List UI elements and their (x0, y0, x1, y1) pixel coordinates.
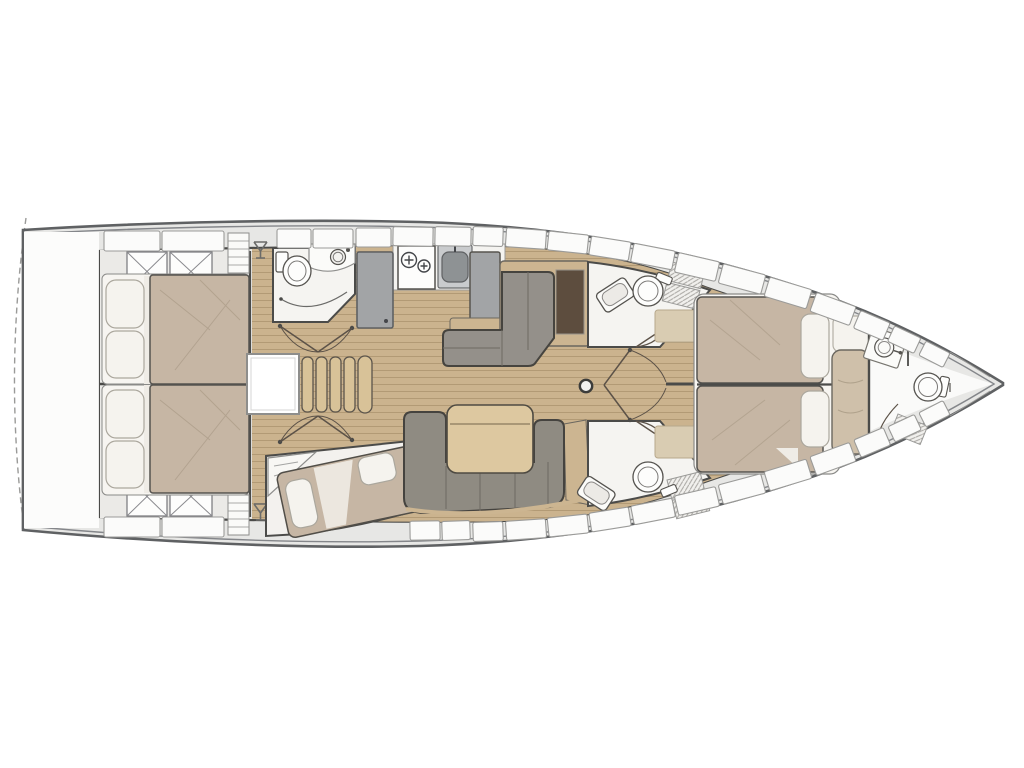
companionway (247, 354, 372, 414)
fridge-handle (384, 319, 388, 323)
companionway-stairs (302, 356, 372, 413)
shelf-rack-top (228, 233, 249, 273)
mast-post-icon (580, 380, 592, 392)
dressing-pad (655, 310, 699, 342)
chaise-longue (832, 316, 869, 454)
yacht-floor-plan (0, 0, 1024, 768)
salon-table (447, 405, 533, 473)
toilet-icon (914, 373, 950, 401)
aft-deck (24, 232, 99, 528)
dressing-pad (655, 426, 699, 458)
double-berth (102, 274, 249, 384)
island-double-berth (694, 294, 840, 474)
yacht-floor-plan-page (0, 0, 1024, 768)
galley-counter-column (470, 252, 500, 322)
double-berth (102, 385, 249, 495)
stove-icon (398, 246, 435, 289)
sideboard-dark (556, 270, 584, 334)
engine-box (247, 354, 299, 414)
shelf-rack-bottom (228, 495, 249, 535)
refrigerator (357, 252, 393, 328)
galley-sink-icon (438, 245, 472, 288)
